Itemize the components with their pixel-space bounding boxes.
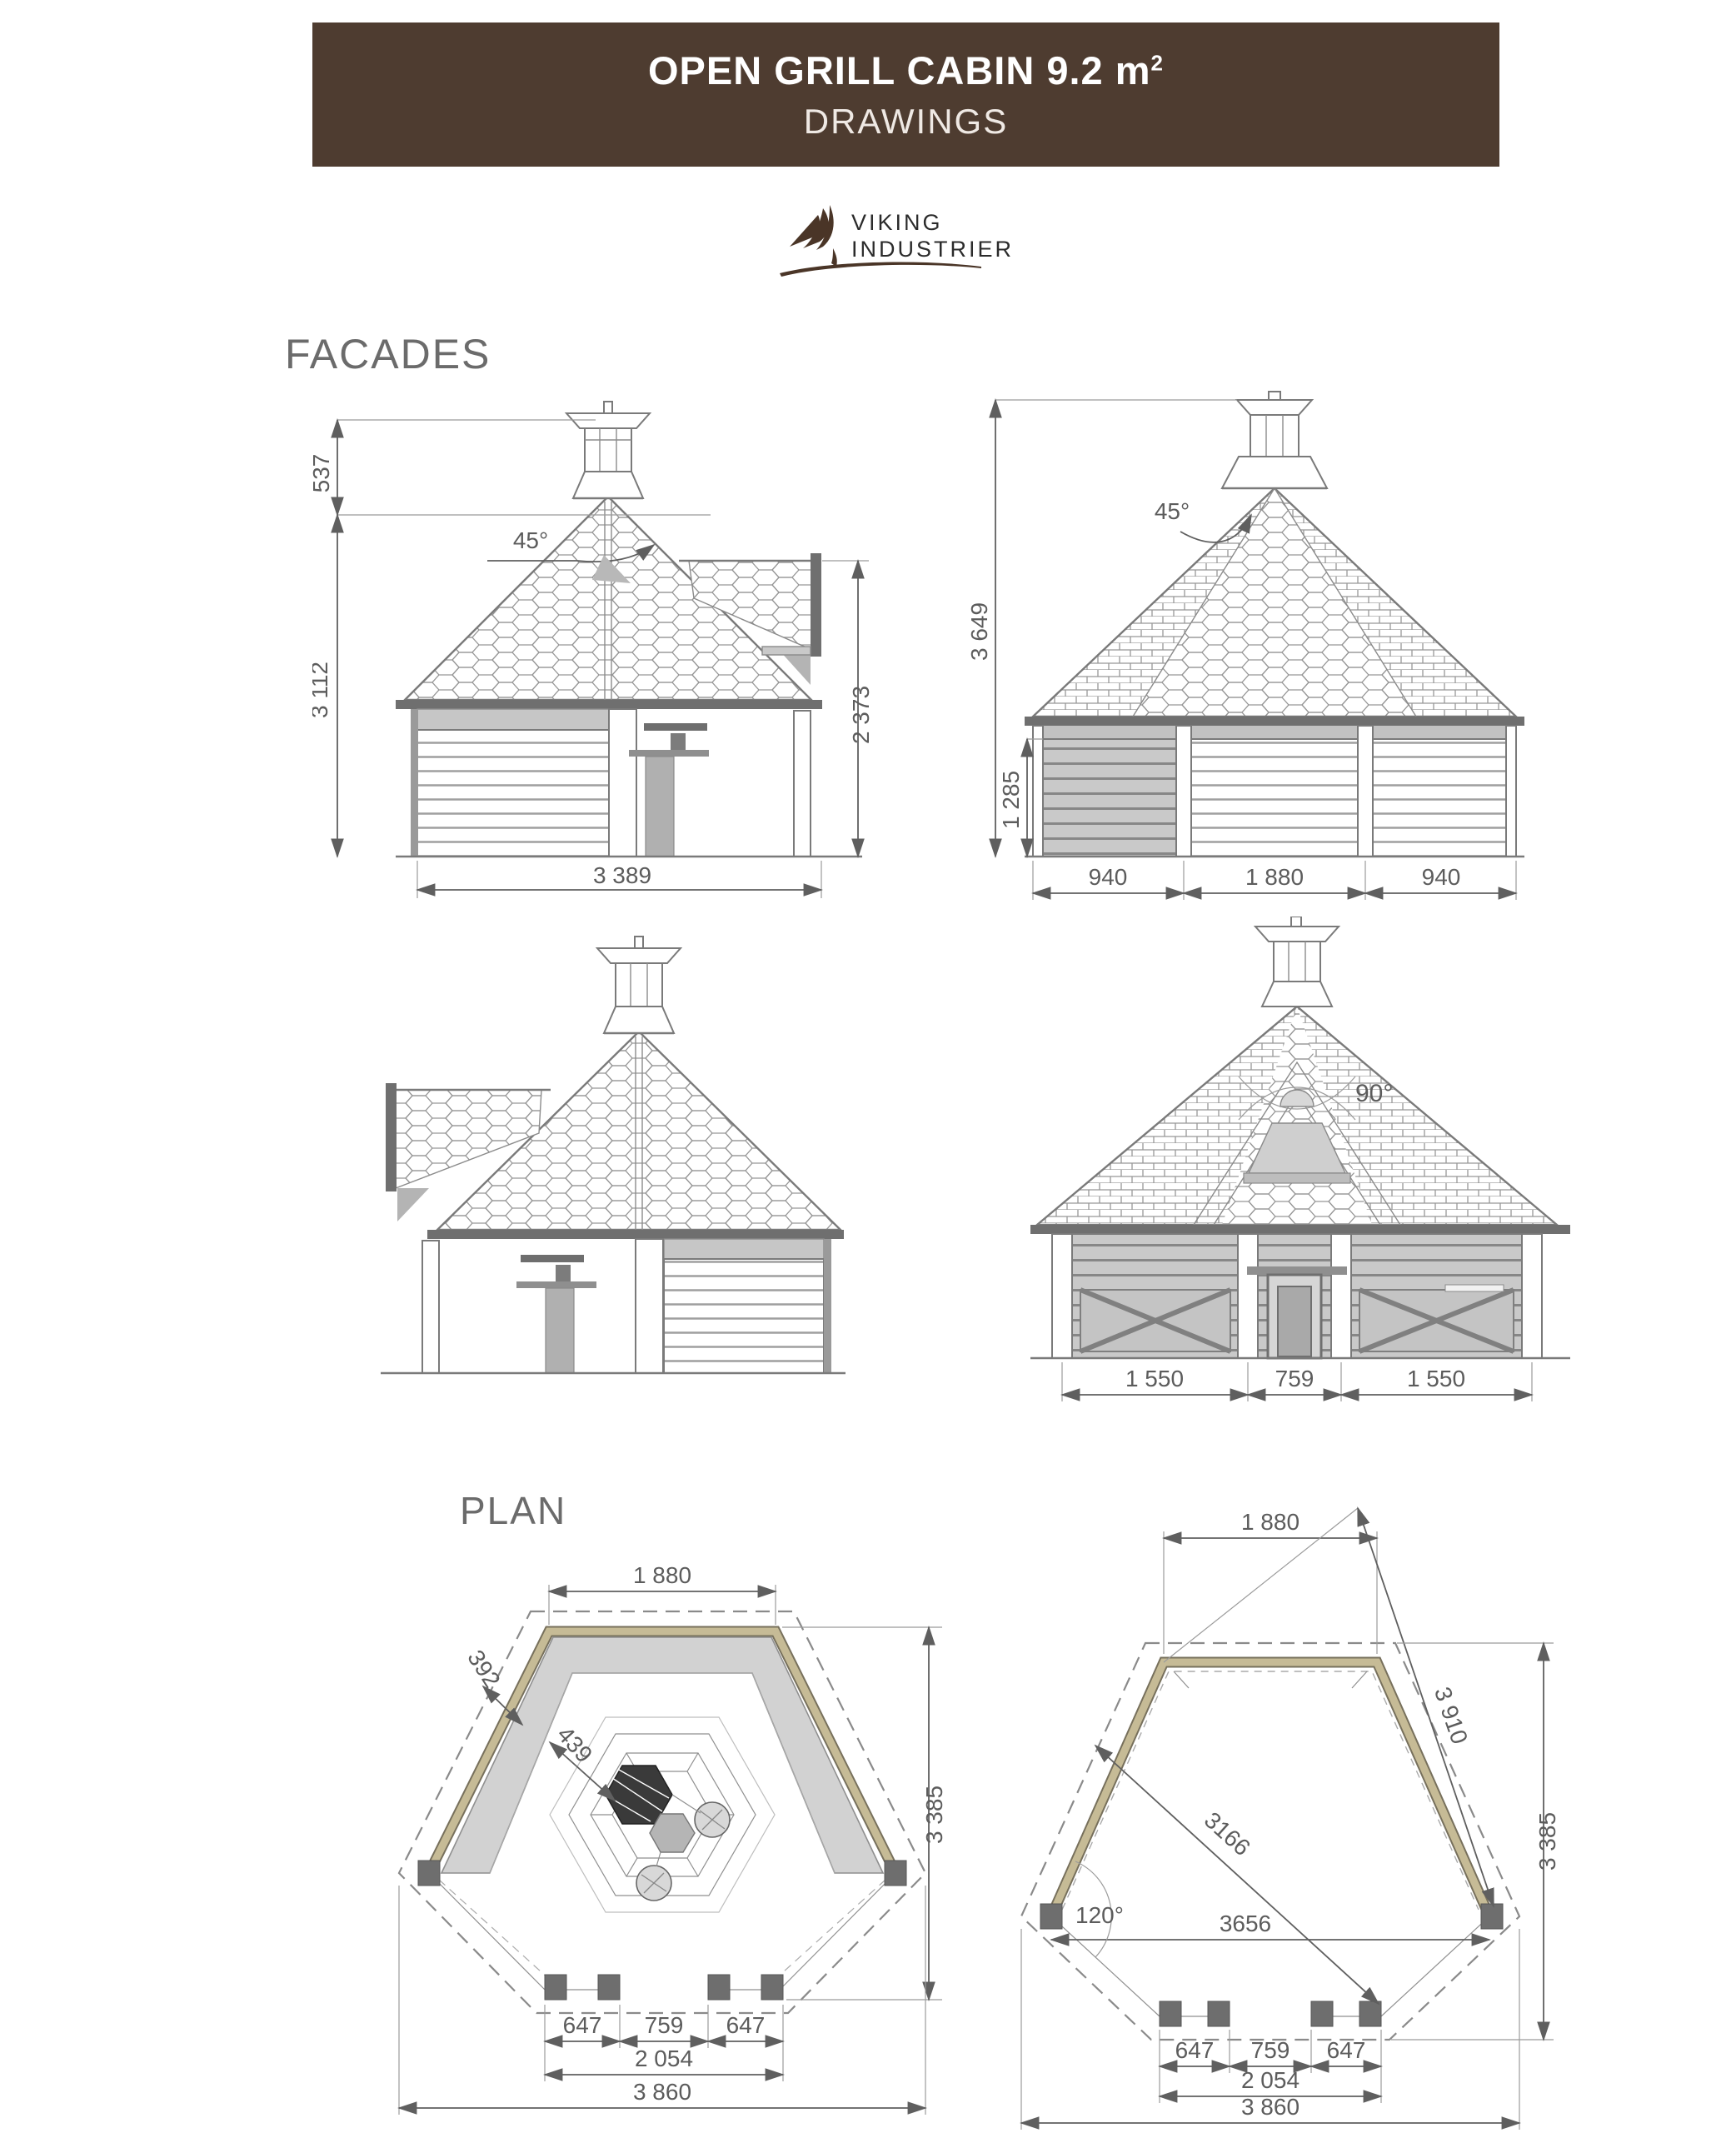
dim-bench-depth: 439 bbox=[552, 1721, 597, 1767]
dim-height: 3 385 bbox=[921, 1786, 947, 1844]
dim-right-panel: 940 bbox=[1422, 864, 1461, 890]
dim-total-width: 3 860 bbox=[1241, 2094, 1300, 2120]
drawing-sheet: OPEN GRILL CABIN 9.2 m2 DRAWINGS VIKING … bbox=[0, 0, 1736, 2133]
dim-chimney-height: 537 bbox=[312, 454, 334, 493]
company-logo: VIKING INDUSTRIER bbox=[775, 193, 1025, 285]
dim-right-wall: 1 550 bbox=[1407, 1366, 1465, 1391]
facade-side-view-left bbox=[346, 923, 920, 1406]
dim-top-wall: 1 880 bbox=[1241, 1509, 1300, 1535]
dim-center-panel: 1 880 bbox=[1245, 864, 1304, 890]
chimney bbox=[1222, 392, 1327, 488]
dim-wall-height: 1 285 bbox=[998, 771, 1024, 829]
walls bbox=[1030, 1225, 1570, 1358]
dim-total-width: 3 389 bbox=[593, 862, 651, 888]
logo-name-top: VIKING bbox=[851, 210, 943, 235]
plan-heading: PLAN bbox=[460, 1488, 566, 1533]
dim-body-height: 3 112 bbox=[312, 662, 332, 718]
dim-front-total: 2 054 bbox=[635, 2046, 693, 2071]
dim-front-wall-right: 647 bbox=[1327, 2037, 1366, 2063]
dim-door: 759 bbox=[645, 2012, 684, 2038]
roof bbox=[386, 1032, 841, 1230]
plan-structural: 1 880 3 910 3166 3656 120° 3 385 647 759… bbox=[970, 1483, 1620, 2133]
dim-total-height: 3 649 bbox=[966, 602, 992, 661]
facade-front-view: 3 649 1 285 45° 940 1 880 940 bbox=[962, 390, 1587, 907]
dim-left-wall: 1 550 bbox=[1125, 1366, 1184, 1391]
dim-front-wall-right: 647 bbox=[726, 2012, 766, 2038]
logo-name-bottom: INDUSTRIER bbox=[851, 237, 1014, 262]
facade-open-front-view: 90° bbox=[1029, 917, 1587, 1416]
roof-angle-label: 45° bbox=[1155, 498, 1190, 524]
title-banner: OPEN GRILL CABIN 9.2 m2 DRAWINGS bbox=[312, 22, 1499, 167]
chimney bbox=[566, 402, 650, 498]
roof bbox=[405, 497, 821, 700]
dim-door: 759 bbox=[1251, 2037, 1290, 2063]
roof-angle-label: 90° bbox=[1355, 1080, 1393, 1107]
roof bbox=[1033, 488, 1516, 717]
dim-door: 759 bbox=[1275, 1366, 1314, 1391]
facade-side-view-right: 537 3 112 45° 2 373 3 389 bbox=[312, 390, 904, 907]
dim-top-wall: 1 880 bbox=[633, 1562, 691, 1588]
walls bbox=[381, 1230, 846, 1373]
walls bbox=[396, 700, 862, 857]
dim-left-panel: 940 bbox=[1089, 864, 1128, 890]
dim-porch-height: 2 373 bbox=[848, 686, 874, 744]
page-title: OPEN GRILL CABIN 9.2 m2 bbox=[312, 47, 1499, 93]
chimney bbox=[1255, 917, 1339, 1007]
dim-overhang: 392 bbox=[462, 1646, 505, 1692]
facades-heading: FACADES bbox=[285, 330, 491, 378]
dim-inner-diagonal: 3166 bbox=[1200, 1807, 1255, 1861]
corner-angle-label: 120° bbox=[1075, 1902, 1124, 1928]
dim-total-width: 3 860 bbox=[633, 2079, 691, 2105]
roof: 90° bbox=[1037, 1007, 1557, 1225]
dim-height: 3 385 bbox=[1534, 1812, 1560, 1871]
dim-front-wall-left: 647 bbox=[1175, 2037, 1215, 2063]
page-subtitle: DRAWINGS bbox=[312, 102, 1499, 142]
dim-front-total: 2 054 bbox=[1241, 2067, 1300, 2093]
plan-furnished: 1 880 392 439 3 385 647 759 647 2 054 bbox=[379, 1548, 962, 2131]
walls bbox=[1025, 717, 1524, 857]
chimney bbox=[597, 937, 681, 1033]
title-superscript: 2 bbox=[1151, 50, 1164, 75]
walls bbox=[1051, 1662, 1489, 2016]
dimensions: 1 550 759 1 550 bbox=[1062, 1362, 1532, 1401]
roof-angle-label: 45° bbox=[513, 527, 548, 553]
dim-span: 3656 bbox=[1220, 1911, 1271, 1936]
dim-front-wall-left: 647 bbox=[563, 2012, 602, 2038]
